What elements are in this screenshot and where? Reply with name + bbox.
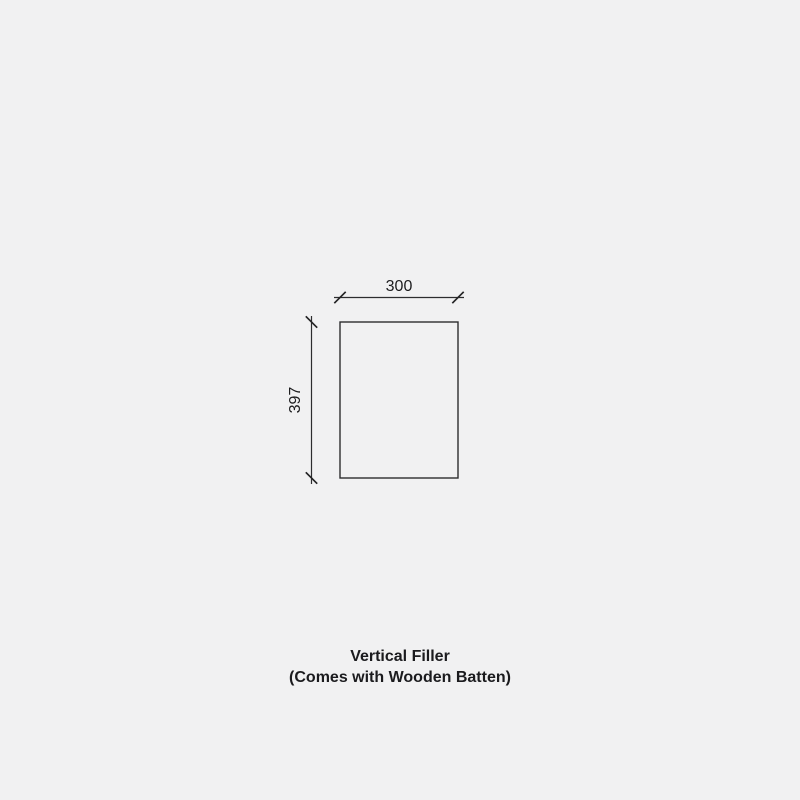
height-dimension-label: 397 [287, 387, 304, 414]
caption: Vertical Filler (Comes with Wooden Batte… [0, 646, 800, 688]
width-dimension: 300 [334, 278, 464, 303]
caption-title: Vertical Filler [0, 646, 800, 667]
caption-subtitle: (Comes with Wooden Batten) [0, 667, 800, 688]
height-dimension: 397 [287, 316, 317, 484]
drawing-canvas: 300 397 Vertical Filler (Comes with Wood… [0, 0, 800, 800]
panel-outline [340, 322, 458, 478]
width-dimension-label: 300 [386, 278, 413, 295]
